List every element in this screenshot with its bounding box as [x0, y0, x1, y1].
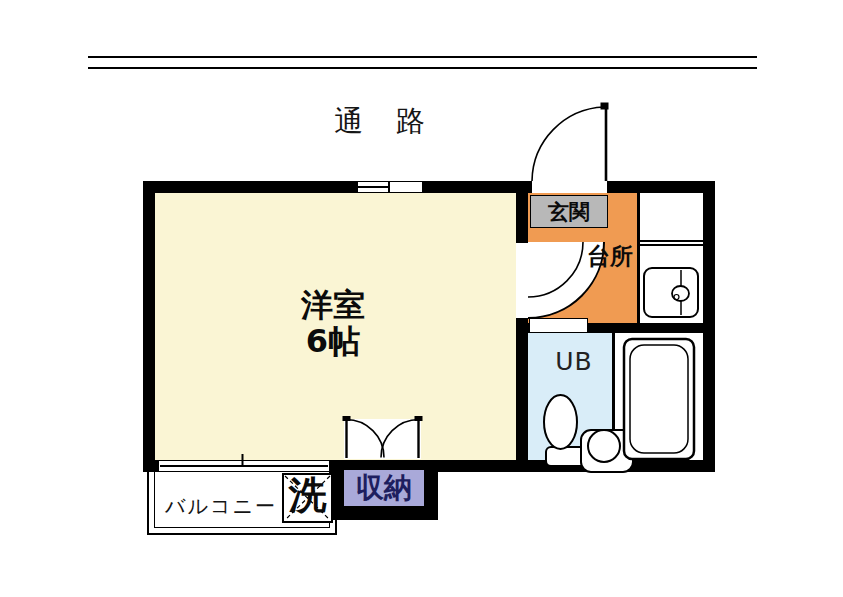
refrigerator-space-divider-line1: [640, 240, 703, 242]
window-top: [357, 181, 423, 193]
kitchen-sink: [644, 268, 698, 317]
bathtub: [624, 339, 694, 459]
unit-bath-threshold: [529, 318, 588, 333]
wall-left: [143, 181, 155, 472]
entrance-area: 玄関: [530, 195, 608, 228]
storage-closet-box: 収納: [342, 468, 426, 508]
unit-bath-divider: [612, 333, 615, 460]
entrance-doorway-opening: [532, 181, 607, 193]
floor-plan: 通 路 玄関 収納: [0, 0, 843, 597]
storage-label: 収納: [356, 469, 412, 507]
wall-right: [703, 181, 715, 472]
kitchen-label: 台所: [575, 245, 645, 268]
unit-bath-label: UB: [543, 349, 605, 374]
laundry-label: 洗: [282, 476, 333, 514]
balcony-sliding-window: [158, 460, 330, 472]
entrance-label: 玄関: [548, 198, 590, 226]
wall-top-right: [607, 181, 715, 193]
wall-interior-vertical-lower: [516, 318, 528, 460]
corridor-label: 通 路: [334, 107, 427, 136]
window-top-sash-line: [358, 186, 389, 188]
wall-interior-vertical-upper: [516, 193, 528, 243]
entrance-door-swing: [532, 103, 609, 182]
refrigerator-space-divider-line2: [640, 244, 703, 246]
wall-top-left: [143, 181, 532, 193]
balcony-label: バルコニー: [165, 496, 277, 516]
western-room-label: 洋室 6帖: [258, 287, 408, 359]
balcony-window-sash-line: [160, 465, 328, 467]
corridor-double-line-top: [88, 56, 757, 58]
corridor-double-line-bottom: [88, 67, 757, 69]
western-room-size: 6帖: [258, 323, 408, 359]
western-room-name: 洋室: [258, 287, 408, 323]
